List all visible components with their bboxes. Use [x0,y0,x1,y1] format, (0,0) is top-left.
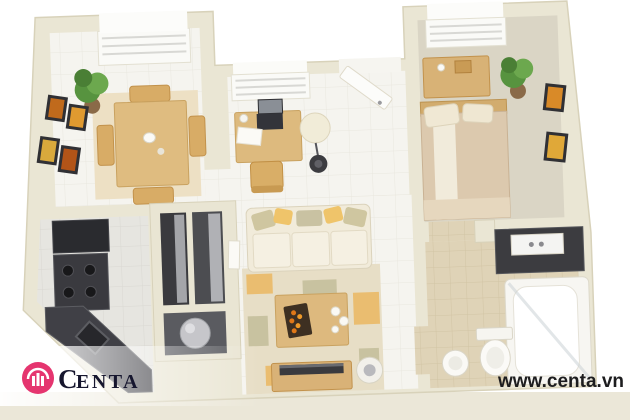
dining-window-opening [99,10,188,33]
bed [420,99,510,220]
water-heater [180,318,211,349]
duvet-fold [424,197,511,220]
candle [332,326,339,333]
sofa-pillow [273,208,293,226]
bed-pillow [462,103,493,123]
dining-passage [205,169,234,202]
candle [331,307,340,316]
vanity [495,227,584,274]
closet-side-paper [228,241,239,269]
laptop-screen [258,99,282,114]
centa-logo [22,362,54,394]
stove [53,253,109,311]
side-stool [356,357,383,384]
tall-cabinet [52,219,109,253]
sofa-pillow [296,210,323,227]
laptop [257,113,284,130]
pedestal-sink [442,350,469,377]
candle [339,316,348,325]
dining-chair [97,125,114,166]
dining-table [114,100,189,186]
brand-initial: C [58,364,78,394]
floor-plan-svg: C ENTA www.centa.vn [0,0,630,420]
bathroom-doorway [414,326,432,375]
dresser-item [437,64,444,71]
sofa [246,204,372,272]
bathtub [505,276,593,385]
bedroom-doorway [428,220,475,242]
desk-chair-back [251,185,283,193]
website-text: www.centa.vn [497,371,624,392]
tv-stand [271,361,352,392]
vanity-sink [511,233,564,255]
brand-text: ENTA [76,371,140,393]
living-room [240,204,384,395]
dining-chair [133,187,174,204]
coffee-table [275,293,349,347]
dresser-box [455,60,471,73]
papers [237,127,263,145]
utility-closet [150,201,244,362]
floor-plan-render: C ENTA www.centa.vn [0,0,630,420]
dining-chair [189,116,206,157]
desk-cup [240,114,248,122]
nook-wall [474,220,495,243]
dining-chair [130,85,171,102]
bed-pillow [424,103,460,128]
table-centerpiece [143,133,155,143]
apartment-plan [13,0,596,406]
